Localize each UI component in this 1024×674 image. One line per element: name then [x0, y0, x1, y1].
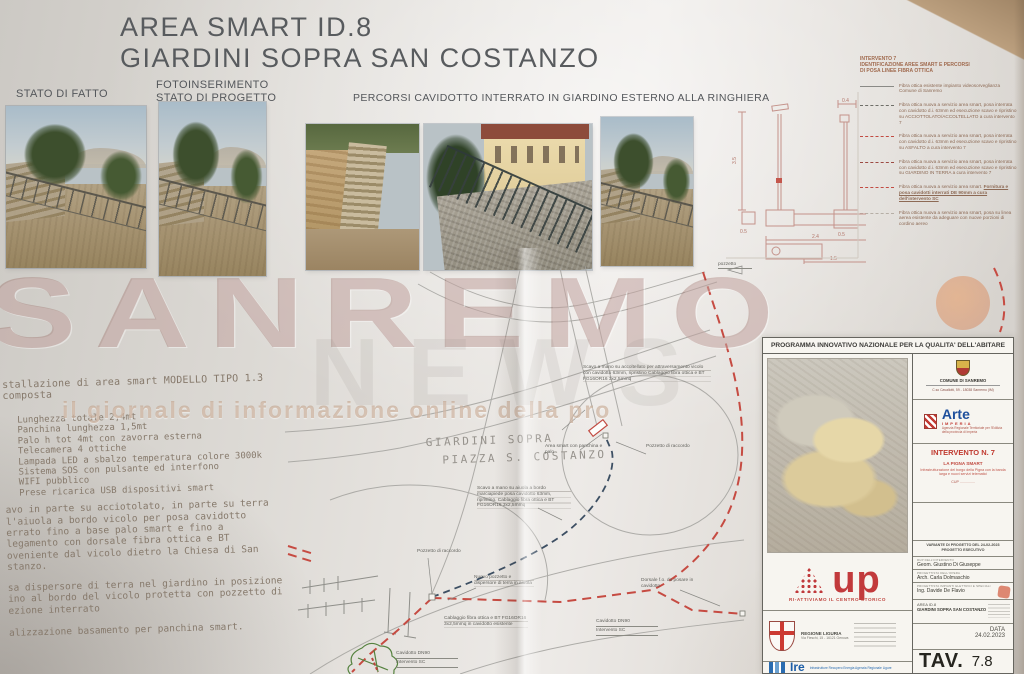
photo-stato-di-fatto: [6, 106, 146, 268]
map-label-pozzetto-1: Pozzetto di raccordo: [646, 444, 726, 450]
tav-number: 7.8: [972, 653, 993, 670]
up-slogan: RI-ATTIVIAMO IL CENTRO STORICO: [769, 597, 906, 602]
photo-roof: [481, 124, 589, 139]
photo-percorso-1: [306, 124, 419, 270]
paper-right-edge-shadow: [1014, 0, 1024, 674]
legend-item: Fibra ottica nuova a servizio area smart…: [860, 184, 1018, 201]
title-block-left-column: up RI-ATTIVIAMO IL CENTRO STORICO REGION…: [763, 354, 913, 673]
up-logo-row: up: [769, 565, 906, 595]
role-name: Arch. Carla Dolmaschio: [917, 575, 1009, 581]
map-label-cavidotto-1: Cavidotto DN90 Intervento SC: [596, 619, 658, 637]
spec-paragraph: sa dispersore di terra nel giardino in p…: [8, 574, 325, 617]
empty-row: [913, 503, 1013, 541]
cavidotto-line1: Cavidotto DN90: [396, 651, 458, 659]
spec-text-block: stallazione di area smart MODELLO TIPO 1…: [2, 371, 325, 639]
title-block-body: up RI-ATTIVIAMO IL CENTRO STORICO REGION…: [763, 354, 1013, 673]
label-percorsi-cavidotto: PERCORSI CAVIDOTTO INTERRATO IN GIARDINO…: [353, 92, 770, 105]
legend-item-text: Fibra ottica nuova a servizio area smart…: [899, 133, 1018, 150]
solid-line-swatch: [860, 86, 894, 88]
page-title: AREA SMART ID.8 GIARDINI SOPRA SAN COSTA…: [120, 12, 600, 74]
ire-logo-text: Ire: [790, 662, 805, 673]
photo-fotoinserimento: [159, 102, 266, 276]
title-block-header: PROGRAMMA INNOVATIVO NAZIONALE PER LA QU…: [763, 338, 1013, 354]
cavidotto-line2: Intervento SC: [596, 628, 658, 636]
arte-logo-text: Arte: [942, 408, 1002, 421]
legend-item-text: Fibra ottica nuova a servizio area smart…: [899, 159, 1018, 176]
liguria-flag-icon: [769, 621, 795, 651]
ire-logo-block: Ire Infrastrutture Recupero Energia Agen…: [763, 661, 912, 673]
legend-item-text: Fibra ottica nuova a servizio area smart…: [899, 184, 1018, 201]
legend-item: Fibra ottica nuova a servizio area smart…: [860, 210, 1018, 227]
dim-0-5b: 0.5: [838, 232, 845, 238]
arte-line2: della provincia di Imperia: [942, 430, 1002, 434]
dim-2-4: 2.4: [812, 234, 819, 240]
label-stato-di-fatto: STATO DI FATTO: [16, 88, 108, 101]
stamp-icon: [997, 585, 1011, 599]
legend-item-text: Fibra ottica esistente impianto videosor…: [899, 83, 1018, 95]
pole-node-marker: [776, 178, 782, 183]
ire-description: Infrastrutture Recupero Energia Agenzia …: [810, 666, 896, 670]
cavidotto-line2: Intervento SC: [396, 660, 458, 668]
tav-label: TAV.: [919, 650, 964, 673]
label-fotoinserimento: FOTOINSERIMENTO STATO DI PROGETTO: [156, 79, 276, 104]
comune-address: C.so Cavallotti, 59 - 18038 Sanremo (IM): [932, 388, 994, 392]
page-title-line1: AREA SMART ID.8: [120, 12, 600, 43]
spec-items: Lunghezza totale 2,4mt Panchina lunghezz…: [3, 407, 321, 499]
role-name: Geom. Giustino Di Giuseppe: [917, 562, 1009, 568]
arte-imperia-box: Arte IMPERIA Agenzia Regionale Territori…: [913, 400, 1013, 444]
dim-0-5: 0.5: [740, 229, 747, 235]
tav-box: TAV. 7.8: [913, 650, 1013, 673]
legend-item: Fibra ottica nuova a servizio area smart…: [860, 133, 1018, 150]
area-id-box: AREA ID.8 GIARDINI SOPRA SAN COSTANZO: [913, 600, 1013, 624]
legend-item-text: Fibra ottica nuova a servizio area smart…: [899, 102, 1018, 125]
intervento-description: Infrastrutturazione del borgo della Pign…: [916, 468, 1010, 477]
photo-windows: [495, 146, 579, 164]
map-label-pozzetto-2: Pozzetto di raccordo: [417, 549, 497, 555]
data-box: DATA 24.02.2023: [913, 624, 1013, 650]
legend-title-line3: DI POSA LINEE FIBRA OTTICA: [860, 68, 1018, 74]
variante-line2: PROGETTO ESECUTIVO: [913, 548, 1013, 553]
title-block: PROGRAMMA INNOVATIVO NAZIONALE PER LA QU…: [762, 337, 1014, 674]
page-title-line2: GIARDINI SOPRA SAN COSTANZO: [120, 43, 600, 74]
scanned-plan-sheet: AREA SMART ID.8 GIARDINI SOPRA SAN COSTA…: [0, 0, 1024, 674]
map-label-scavo-1: Scavo a mano su accoltellato per attrave…: [583, 365, 711, 382]
regione-address: Via Fieschi, 15 - 16121 Genova: [801, 636, 848, 640]
ire-logo-icon: [769, 662, 785, 673]
divider: [926, 385, 1000, 386]
map-label-pozzetto-tiny: pozzetto: [718, 262, 752, 269]
legend-item: Fibra ottica nuova a servizio area smart…: [860, 102, 1018, 125]
dim-3-5: 3.5: [732, 157, 738, 164]
up-logo-block: up RI-ATTIVIAMO IL CENTRO STORICO: [763, 557, 912, 609]
variante-box: VARIANTE DI PROGETTO DEL 24-02-2023 PROG…: [913, 541, 1013, 557]
role-name: Ing. Davide De Flavio: [917, 588, 1009, 594]
regione-liguria-block: REGIONE LIGURIA Via Fieschi, 15 - 16121 …: [763, 610, 912, 661]
fiber-legend: INTERVENTO 7 IDENTIFICAZIONE AREE SMART …: [860, 56, 1018, 227]
legend-item: Fibra ottica nuova a servizio area smart…: [860, 159, 1018, 176]
up-logo-text: up: [832, 565, 880, 595]
regione-liguria-text: REGIONE LIGURIA Via Fieschi, 15 - 16121 …: [801, 631, 848, 640]
comune-sanremo-box: COMUNE DI SANREMO C.so Cavallotti, 59 - …: [913, 354, 1013, 400]
legend-item: Fibra ottica esistente impianto videosor…: [860, 83, 1018, 95]
intervento-cup: CUP ...............: [916, 480, 1010, 484]
title-block-right-column: COMUNE DI SANREMO C.so Cavallotti, 59 - …: [913, 354, 1013, 673]
map-label-cavidotto-2: Cavidotto DN90 Intervento SC: [396, 651, 458, 669]
photo-steps: [340, 143, 388, 240]
data-value: 24.02.2023: [913, 633, 1005, 639]
map-label-area-smart: Area smart con panchina e palo: [545, 444, 603, 456]
cavidotto-line1: Cavidotto DN90: [596, 619, 658, 627]
map-label-dorsale: Dorsale f.o. da posare in cavidotto: [641, 578, 707, 590]
comune-name: COMUNE DI SANREMO: [940, 378, 987, 383]
legend-item-text-plain: Fibra ottica nuova a servizio area smart…: [899, 184, 984, 189]
up-dots-icon: [794, 567, 824, 593]
comune-sanremo-shield-icon: [956, 360, 970, 376]
role-progettista: PROGETTISTA DELL'OPERA Arch. Carla Dolma…: [913, 570, 1013, 583]
spec-paragraph: avo in parte su acciotolato, in parte su…: [5, 496, 323, 573]
paper-fold-crease: [494, 248, 542, 674]
role-impianti: PROGETTISTA IMPIANTI ELETTRICI E SPECIAL…: [913, 583, 1013, 600]
role-rup: RUP DELL'INTERVENTO Geom. Giustino Di Gi…: [913, 557, 1013, 570]
arte-text: Arte IMPERIA Agenzia Regionale Territori…: [942, 408, 1002, 434]
intervento-subtitle: LA PIGNA SMART: [916, 461, 1010, 466]
intervento-title: INTERVENTO N. 7: [916, 448, 1010, 457]
pigna-3d-render: [767, 358, 908, 553]
legend-item-text: Fibra ottica nuova a servizio area smart…: [899, 210, 1018, 227]
fine-print-smudge: [988, 604, 1010, 618]
fine-print-smudge: [854, 623, 896, 649]
dim-0-4: 0.4: [842, 98, 849, 104]
arte-shield-icon: [924, 414, 937, 429]
photo-percorso-3: [601, 117, 693, 266]
smart-pole-bench-diagram: 3.5 0.4 0.5 2.4 1.5 0.5: [726, 92, 866, 264]
intervento-box: INTERVENTO N. 7 LA PIGNA SMART Infrastru…: [913, 444, 1013, 504]
label-fotoinserimento-line1: FOTOINSERIMENTO: [156, 79, 276, 92]
